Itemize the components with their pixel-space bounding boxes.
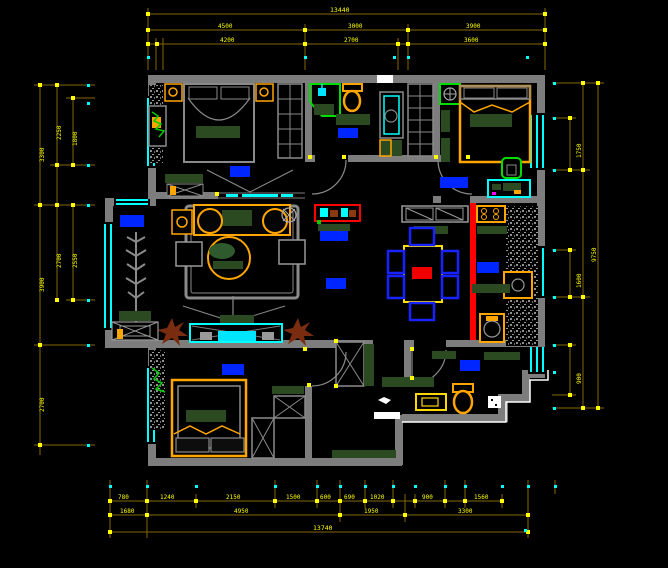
dim-text[interactable]: 1560	[474, 494, 489, 501]
aquarium-water[interactable]	[341, 208, 348, 217]
kitchen-counter[interactable]	[477, 226, 507, 234]
wall-bath-bottom[interactable]	[402, 414, 502, 422]
dining-chair[interactable]	[442, 276, 458, 298]
shelf[interactable]	[441, 110, 450, 132]
desk-item[interactable]	[492, 192, 496, 195]
window-pane[interactable]	[116, 203, 148, 205]
dim-text[interactable]: 1020	[370, 494, 385, 501]
dim-text[interactable]: 4500	[218, 23, 233, 30]
dim-text[interactable]: 1800	[72, 131, 79, 146]
sofa-cushion[interactable]	[222, 210, 252, 226]
dim-text[interactable]: 3300	[39, 147, 46, 162]
wash-basin[interactable]	[416, 394, 446, 410]
wall-bedroom2-south[interactable]	[433, 196, 441, 203]
glazing-pane[interactable]	[226, 194, 238, 197]
speaker[interactable]	[200, 332, 212, 340]
dining-chair[interactable]	[388, 276, 404, 298]
water-heater-top[interactable]	[486, 316, 498, 321]
balcony-shelf[interactable]	[119, 311, 151, 321]
footboard-drawer[interactable]	[176, 438, 209, 452]
plant-small[interactable]	[317, 220, 321, 224]
dim-text[interactable]: 4950	[234, 508, 249, 515]
coffee-table[interactable]	[208, 237, 250, 279]
stove[interactable]	[477, 206, 505, 222]
dim-text[interactable]: 780	[118, 494, 129, 501]
dining-centerpiece[interactable]	[412, 267, 432, 279]
floor-drain[interactable]	[488, 396, 501, 408]
wall-closet-bedroom2[interactable]	[433, 75, 440, 162]
dim-text[interactable]: 1950	[364, 508, 379, 515]
toilet[interactable]	[344, 91, 360, 111]
shoe-bench[interactable]	[332, 450, 396, 458]
dim-text[interactable]: 3300	[458, 508, 473, 515]
console-shelf[interactable]	[318, 224, 350, 231]
cad-canvas[interactable]: 1344045003000390042002700360078012402150…	[0, 0, 668, 568]
bed-runner[interactable]	[186, 410, 226, 422]
window-pane[interactable]	[116, 199, 148, 201]
desk-item[interactable]	[514, 190, 521, 194]
coffee-table-plant[interactable]	[209, 243, 235, 259]
dim-text[interactable]: 13740	[313, 524, 333, 532]
bath2-counter[interactable]	[382, 377, 434, 387]
aquarium-water[interactable]	[320, 208, 328, 217]
side-table[interactable]	[172, 210, 192, 234]
pouf[interactable]	[279, 240, 305, 264]
window-pane[interactable]	[542, 115, 544, 168]
dim-text[interactable]: 1680	[120, 508, 135, 515]
nightstand[interactable]	[256, 84, 273, 101]
room-label-living[interactable]	[326, 278, 346, 289]
dim-text[interactable]: 1500	[286, 494, 301, 501]
window-pane[interactable]	[110, 224, 112, 328]
dresser-top[interactable]	[272, 386, 304, 394]
bath2-shelf[interactable]	[484, 352, 520, 360]
dim-text[interactable]: 900	[576, 373, 583, 384]
dim-text[interactable]: 2550	[72, 253, 79, 268]
glazing-pane[interactable]	[242, 194, 278, 197]
wall-bedroom3-east[interactable]	[305, 386, 312, 466]
bed-runner[interactable]	[470, 114, 512, 127]
wall-kitchen-south[interactable]	[404, 340, 414, 347]
dim-text[interactable]: 3900	[39, 277, 46, 292]
pouf[interactable]	[176, 242, 202, 266]
glazing-pane[interactable]	[281, 194, 293, 197]
wall-exterior-bottom[interactable]	[148, 458, 402, 466]
window-pane[interactable]	[536, 115, 538, 168]
window-pane[interactable]	[104, 224, 106, 328]
speaker[interactable]	[262, 332, 274, 340]
dim-text[interactable]: 690	[344, 494, 355, 501]
media-shelf[interactable]	[220, 315, 254, 324]
dim-text[interactable]: 3900	[466, 23, 481, 30]
dim-text[interactable]: 2700	[56, 253, 63, 268]
dim-text[interactable]: 2250	[56, 125, 63, 140]
dim-text[interactable]: 1240	[160, 494, 175, 501]
title-text-blob[interactable]	[374, 412, 400, 419]
dim-text[interactable]: 900	[422, 494, 433, 501]
window-pane[interactable]	[536, 346, 538, 372]
room-label-balcony[interactable]	[120, 215, 144, 227]
wall-opening-top[interactable]	[377, 75, 393, 83]
aquarium-fish[interactable]	[349, 210, 356, 217]
dim-text[interactable]: 4200	[220, 37, 235, 44]
dim-text[interactable]: 3000	[348, 23, 363, 30]
window-pane[interactable]	[542, 248, 544, 296]
desk-item[interactable]	[503, 183, 521, 191]
coffee-table-tray[interactable]	[213, 261, 243, 269]
bench-top[interactable]	[165, 174, 203, 183]
bed-master[interactable]	[184, 84, 254, 162]
dim-text[interactable]: 13440	[330, 6, 350, 14]
bath2-shelf[interactable]	[432, 351, 456, 359]
room-label-bedroom3[interactable]	[222, 364, 244, 375]
room-label-kitchen[interactable]	[477, 262, 499, 273]
aquarium-fish[interactable]	[330, 210, 338, 217]
floorplan-drawing[interactable]: 1344045003000390042002700360078012402150…	[0, 0, 668, 568]
dim-text[interactable]: 1750	[576, 143, 583, 158]
room-label-hall[interactable]	[320, 231, 348, 241]
room-label-bath2[interactable]	[460, 360, 480, 371]
dim-text[interactable]: 2700	[39, 397, 46, 412]
room-label-bedroom2[interactable]	[440, 177, 468, 188]
wall-entry-right[interactable]	[395, 415, 403, 465]
bench-accent[interactable]	[170, 186, 176, 195]
wall-exterior-top[interactable]	[148, 75, 545, 83]
wall-bath-south[interactable]	[348, 155, 406, 162]
nightstand[interactable]	[165, 84, 182, 101]
room-label-bath1[interactable]	[338, 128, 358, 138]
tv-screen[interactable]	[218, 331, 256, 341]
dim-text[interactable]: 1600	[576, 273, 583, 288]
dim-text[interactable]: 3600	[464, 37, 479, 44]
dining-chair[interactable]	[410, 228, 434, 245]
dim-text[interactable]: 600	[320, 494, 331, 501]
bed-runner[interactable]	[196, 126, 240, 138]
dining-chair[interactable]	[410, 303, 434, 320]
balcony-table-accent[interactable]	[117, 329, 123, 339]
floor-drain-dot[interactable]	[495, 404, 497, 406]
dim-text[interactable]: 2700	[344, 37, 359, 44]
dim-text[interactable]: 9750	[591, 247, 598, 262]
dining-chair[interactable]	[388, 251, 404, 273]
hall-cabinet-side[interactable]	[364, 344, 374, 386]
floor-drain-dot[interactable]	[491, 399, 493, 401]
shelf[interactable]	[441, 138, 450, 162]
window-pane[interactable]	[542, 346, 544, 372]
footboard-drawer[interactable]	[211, 438, 244, 452]
desk-item[interactable]	[492, 184, 501, 190]
window-pane[interactable]	[147, 368, 149, 442]
shower-head[interactable]	[318, 88, 326, 96]
dining-chair[interactable]	[442, 251, 458, 273]
sliding-door-kitchen[interactable]	[470, 203, 476, 342]
kitchen-counter[interactable]	[472, 284, 510, 293]
shower-shelf[interactable]	[314, 104, 334, 115]
wall-bath2-west[interactable]	[404, 347, 411, 379]
dim-text[interactable]: 2150	[226, 494, 241, 501]
bath-counter[interactable]	[336, 114, 370, 125]
window-pane[interactable]	[530, 346, 532, 372]
toilet[interactable]	[454, 391, 472, 413]
room-label-bedroom1[interactable]	[230, 166, 250, 177]
